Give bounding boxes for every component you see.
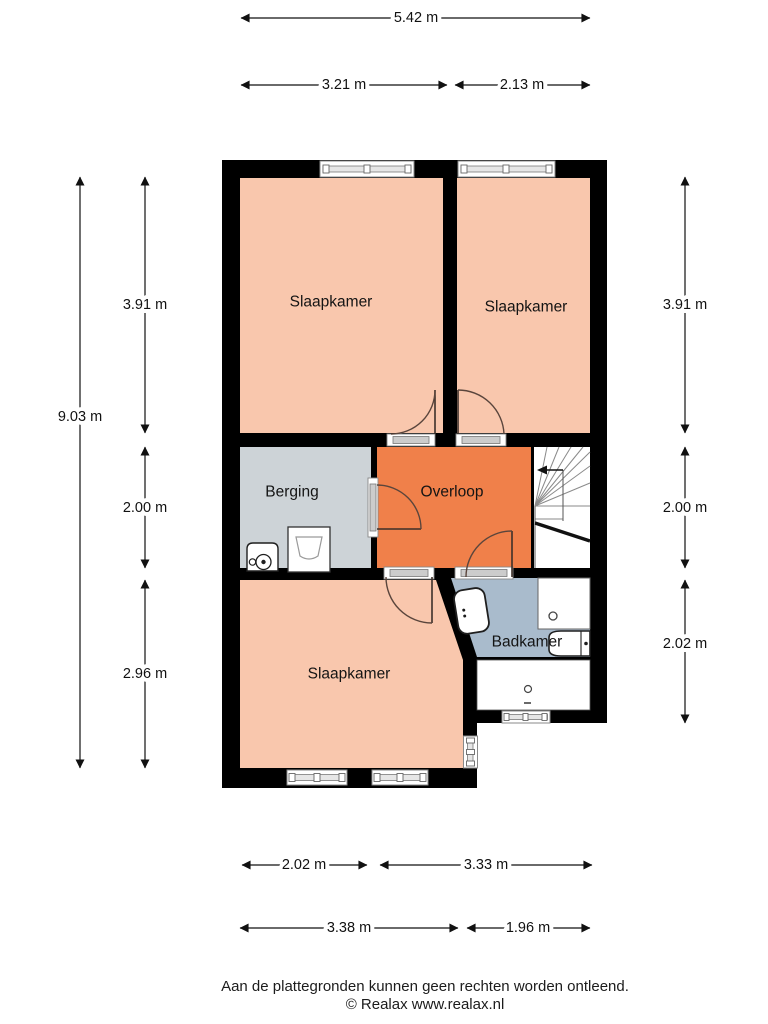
svg-text:1.96 m: 1.96 m: [506, 920, 550, 936]
footer-copyright: © Realax www.realax.nl: [346, 996, 505, 1013]
room-label-landing: Overloop: [421, 484, 484, 501]
svg-text:2.96 m: 2.96 m: [123, 666, 167, 682]
shower-drain-icon: [549, 612, 557, 620]
room-label-storage: Berging: [265, 484, 318, 501]
room-label-bathroom: Badkamer: [492, 634, 563, 651]
room-label-bedroom-bottom: Slaapkamer: [308, 666, 391, 683]
svg-text:3.91 m: 3.91 m: [123, 297, 167, 313]
svg-text:2.00 m: 2.00 m: [123, 500, 167, 516]
window: [458, 161, 555, 177]
room-landing: [377, 447, 531, 568]
laundry-sink-icon: [288, 527, 330, 572]
window: [502, 711, 550, 723]
svg-text:3.33 m: 3.33 m: [464, 857, 508, 873]
dimension-bottom-row1-right: 3.33 m: [380, 857, 592, 873]
svg-text:2.00 m: 2.00 m: [663, 500, 707, 516]
dimension-right-top: 3.91 m: [663, 177, 707, 433]
door-opening-bedroom-top-right: [456, 434, 506, 446]
window: [464, 736, 478, 768]
door-opening-bedroom-top-left: [387, 434, 435, 446]
dimension-left-middle: 2.00 m: [123, 447, 167, 568]
footer-disclaimer: Aan de plattegronden kunnen geen rechten…: [221, 978, 629, 995]
svg-text:2.02 m: 2.02 m: [282, 857, 326, 873]
dimension-right-middle: 2.00 m: [663, 447, 707, 568]
window: [372, 770, 428, 785]
svg-text:3.38 m: 3.38 m: [327, 920, 371, 936]
door-opening-bedroom-bottom: [384, 567, 434, 579]
washing-machine-icon: [247, 543, 278, 571]
dimension-bottom-row1-left: 2.02 m: [242, 857, 367, 873]
dimension-left-bottom: 2.96 m: [123, 580, 167, 768]
svg-text:5.42 m: 5.42 m: [394, 10, 438, 26]
dimension-top-total: 5.42 m: [241, 10, 590, 26]
door-opening-bathroom: [455, 567, 513, 579]
svg-text:3.21 m: 3.21 m: [322, 77, 366, 93]
shower-icon: [538, 578, 590, 629]
dimension-left-top: 3.91 m: [123, 177, 167, 433]
dimension-left-total: 9.03 m: [58, 177, 102, 768]
room-label-bedroom-top-left: Slaapkamer: [290, 294, 373, 311]
door-opening-storage: [368, 478, 378, 537]
floorplan-page: Slaapkamer Slaapkamer Berging Overloop S…: [0, 0, 768, 1024]
bathroom-shower-floor: [477, 660, 590, 710]
room-label-bedroom-top-right: Slaapkamer: [485, 299, 568, 316]
svg-text:9.03 m: 9.03 m: [58, 409, 102, 425]
room-staircase: [534, 447, 590, 568]
dimension-bottom-row2-left: 3.38 m: [240, 920, 458, 936]
window: [287, 770, 347, 785]
floorplan-canvas: Slaapkamer Slaapkamer Berging Overloop S…: [0, 0, 768, 1024]
svg-text:3.91 m: 3.91 m: [663, 297, 707, 313]
dimension-right-bottom: 2.02 m: [663, 580, 707, 723]
toilet-icon: [453, 587, 491, 635]
dimension-bottom-row2-right: 1.96 m: [467, 920, 590, 936]
svg-text:2.13 m: 2.13 m: [500, 77, 544, 93]
svg-text:2.02 m: 2.02 m: [663, 636, 707, 652]
dimension-top-left: 3.21 m: [241, 77, 447, 93]
window: [320, 161, 414, 177]
dimension-top-right: 2.13 m: [455, 77, 590, 93]
